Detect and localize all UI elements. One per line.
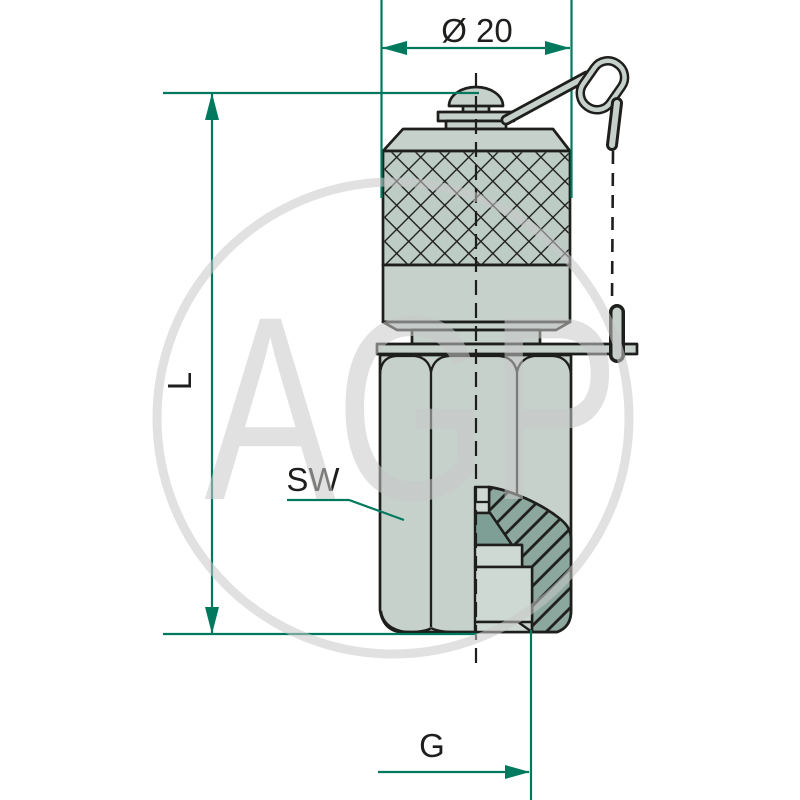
retainer-rod-fill: [506, 76, 587, 120]
length-arrow-bottom: [205, 607, 219, 634]
wrench-size-label: SW: [286, 461, 340, 498]
thread-label: G: [419, 727, 445, 764]
dimension-thread: G: [378, 630, 531, 800]
length-arrow-top: [205, 93, 219, 120]
technical-drawing: Ø 20 L SW G AGP: [0, 0, 800, 800]
bore-step: [475, 545, 522, 567]
flange-washer: [377, 344, 637, 354]
diameter-label: Ø 20: [441, 12, 513, 49]
diameter-arrow-left: [382, 41, 407, 55]
retainer-wire-hidden: [612, 151, 613, 302]
fitting-part: [377, 73, 637, 665]
thread-arrow-right: [505, 765, 530, 779]
bore-main: [475, 567, 532, 622]
drawing-canvas: Ø 20 L SW G AGP: [0, 0, 800, 800]
diameter-arrow-right: [545, 41, 570, 55]
length-label: L: [161, 372, 198, 390]
